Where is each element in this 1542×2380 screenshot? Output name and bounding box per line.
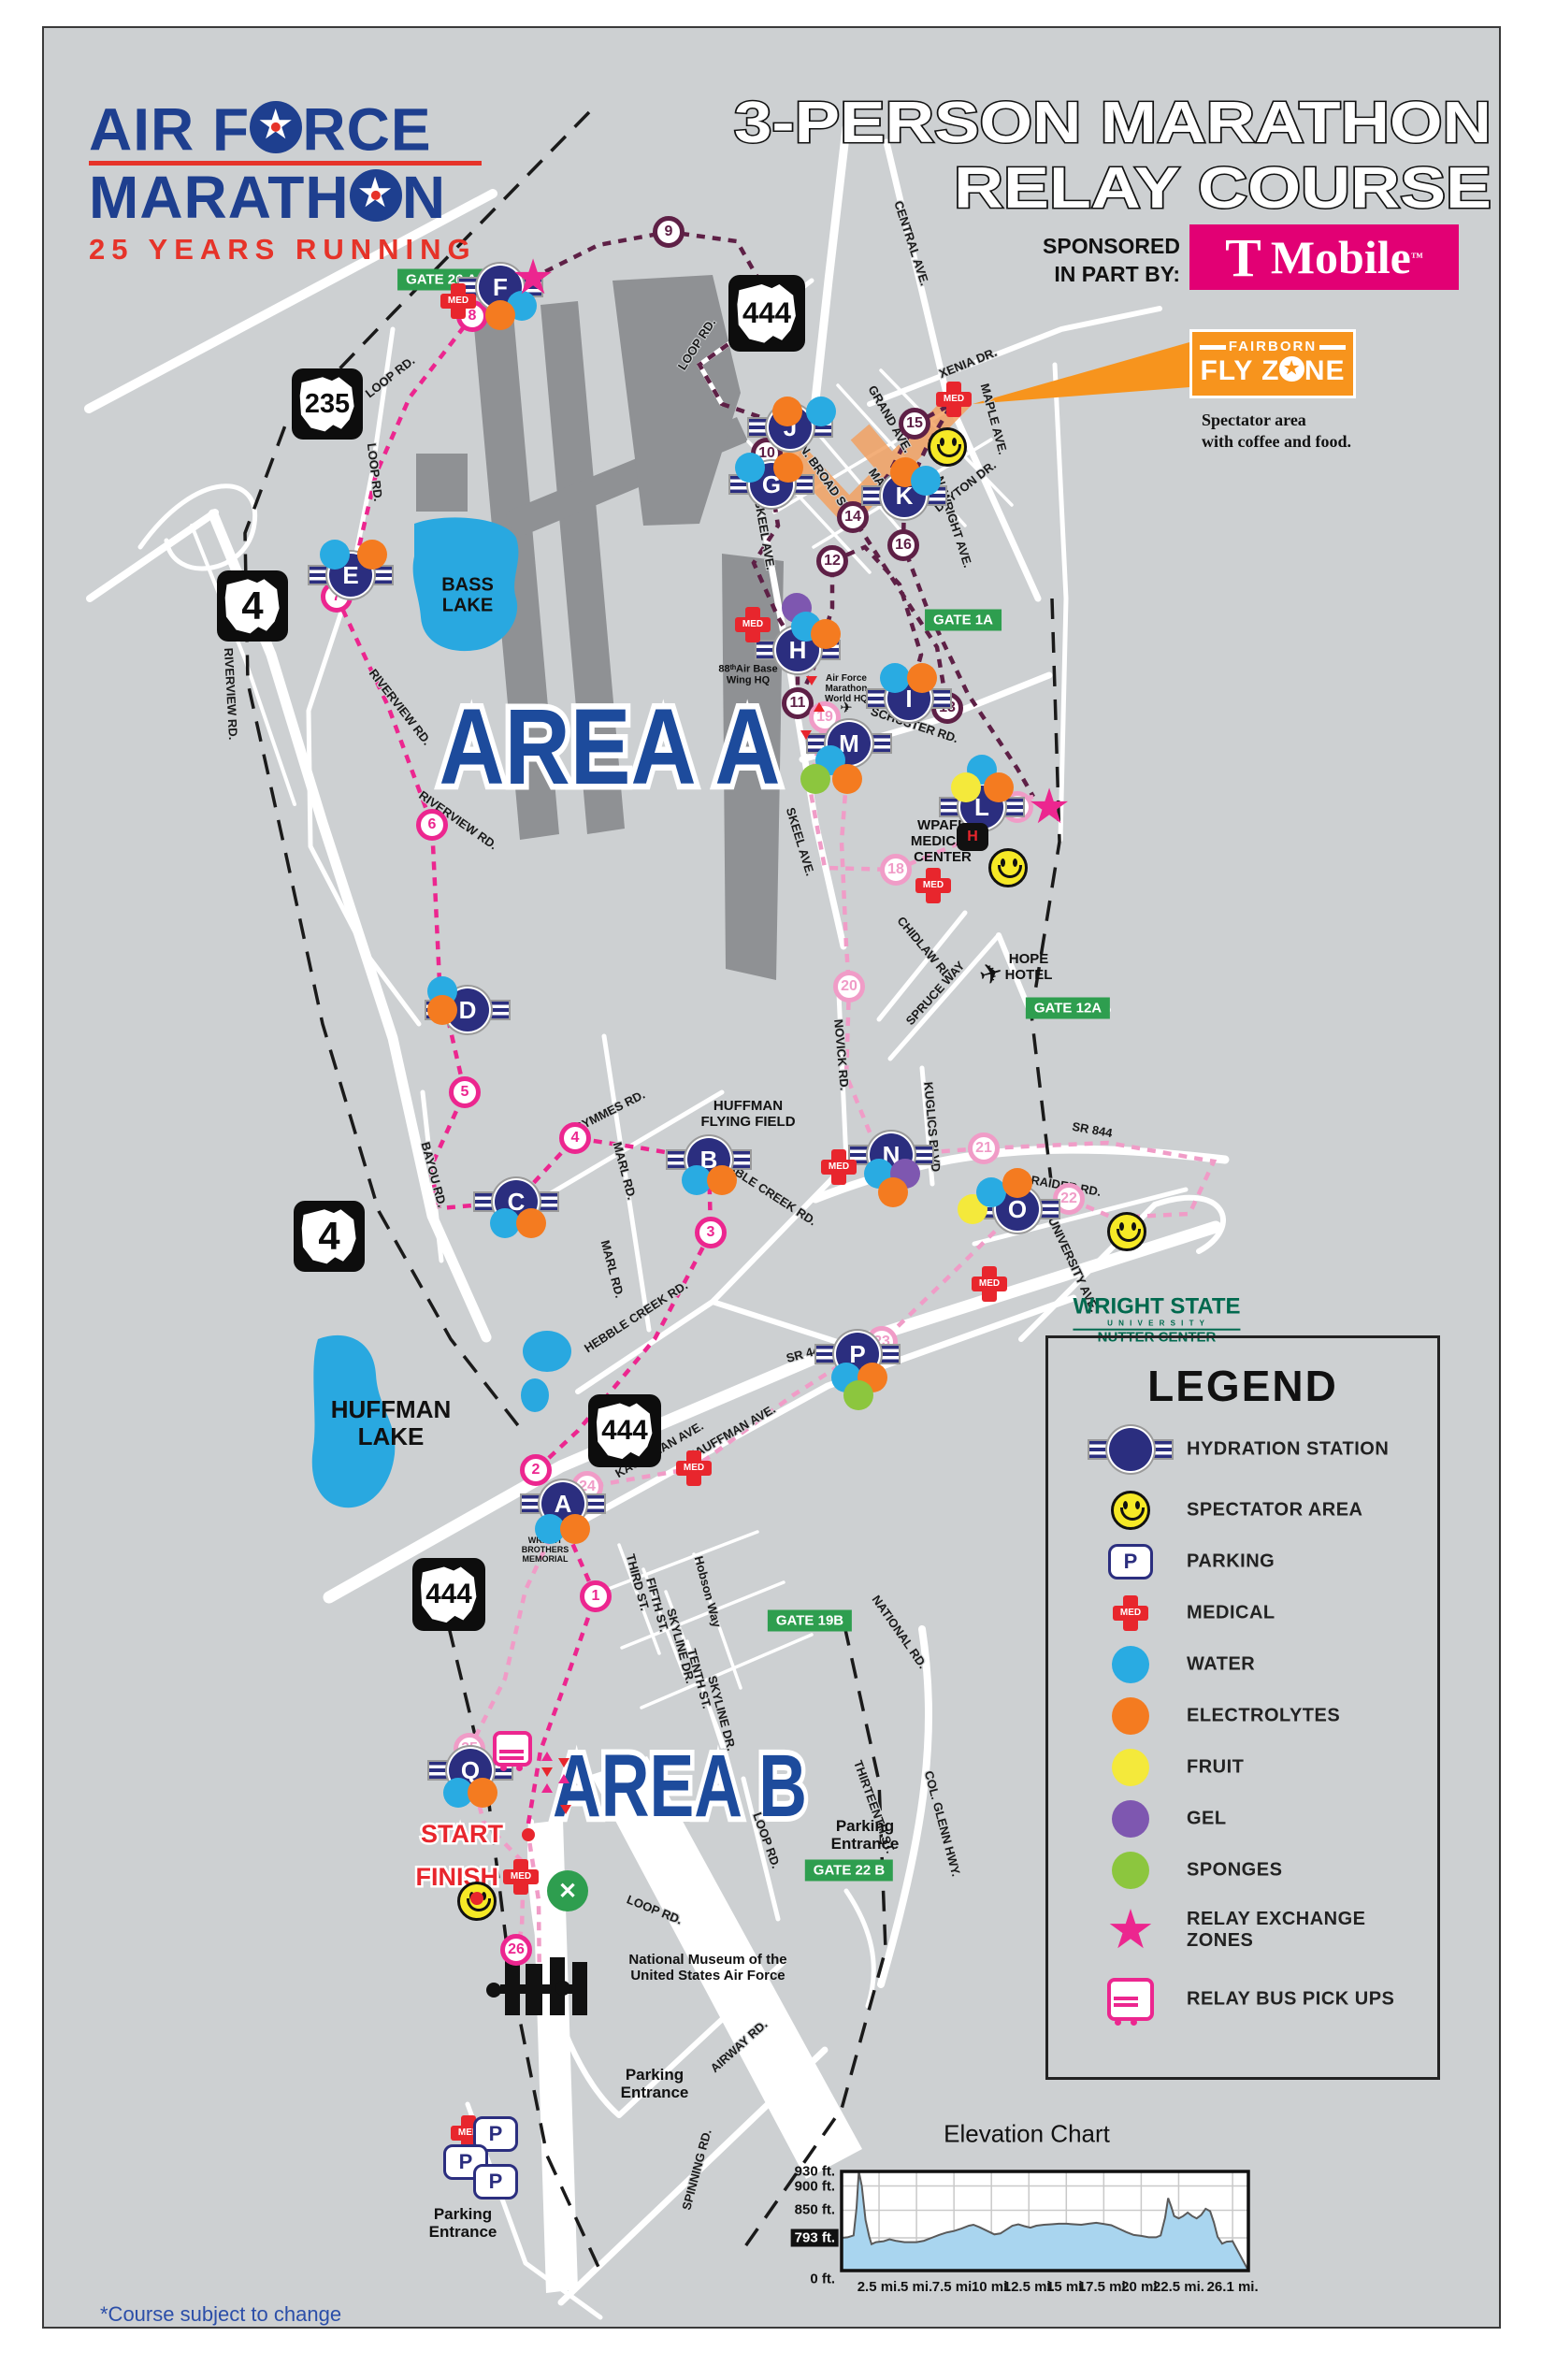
elevation-x-label: 7.5 mi. — [932, 2279, 976, 2295]
water-dot — [880, 663, 910, 693]
legend-label: RELAY EXCHANGE ZONES — [1187, 1909, 1437, 1952]
spectator-smiley-icon — [1107, 1212, 1146, 1251]
legend-icon — [1112, 1697, 1149, 1735]
legend-icon: MED — [1113, 1595, 1148, 1631]
helipad-icon: H — [957, 823, 988, 851]
direction-arrow-icon — [558, 1774, 569, 1783]
direction-arrow-icon — [541, 1752, 553, 1761]
legend-hydration-icon — [1089, 1428, 1172, 1471]
legend-parking-icon: P — [1108, 1544, 1153, 1579]
direction-arrow-icon — [814, 702, 825, 712]
legend-label: SPECTATOR AREA — [1187, 1499, 1363, 1521]
route-number: 444 — [412, 1558, 485, 1631]
legend-row: P PARKING — [1048, 1536, 1437, 1587]
start-finish-point — [522, 1828, 535, 1841]
gate-sign: GATE 22 B — [805, 1860, 893, 1882]
legend-star-icon: ★ — [1106, 1911, 1155, 1949]
medical-icon: MED — [503, 1859, 539, 1895]
course-footnote: *Course subject to change — [100, 2302, 341, 2327]
legend-row: GEL — [1048, 1793, 1437, 1844]
poi-label: National Museum of theUnited States Air … — [628, 1953, 786, 1984]
legend-icon — [1112, 1800, 1149, 1838]
legend-smiley-icon — [1111, 1491, 1150, 1530]
electrolytes-dot — [1002, 1168, 1032, 1198]
mile-marker: 26 — [500, 1934, 532, 1966]
legend-row: SPECTATOR AREA — [1048, 1484, 1437, 1536]
legend-items: HYDRATION STATION SPECTATOR AREA P PARKI… — [1048, 1415, 1437, 2034]
electrolytes-dot — [560, 1514, 590, 1544]
route-number: 444 — [728, 275, 805, 352]
water-dot — [806, 397, 836, 426]
poster-page: AREA A AREA B 3-PERSON MARATHON RELAY CO… — [0, 0, 1542, 2380]
gate-sign: GATE 19B — [768, 1610, 852, 1632]
route-shield: 444 — [728, 275, 805, 352]
start-label: START — [421, 1820, 503, 1848]
direction-arrow-icon — [800, 730, 812, 740]
legend-row: ★ RELAY EXCHANGE ZONES — [1048, 1896, 1437, 1965]
legend-row: SPONGES — [1048, 1844, 1437, 1896]
airplane-icon: ✈ — [840, 699, 852, 717]
electrolytes-dot — [984, 772, 1014, 802]
direction-arrow-icon — [541, 1767, 553, 1777]
legend-gel-icon — [1112, 1800, 1149, 1838]
star-roundel-icon — [350, 169, 402, 222]
route-shield: 444 — [588, 1394, 661, 1467]
sponges-dot — [843, 1380, 873, 1410]
legend-sponges-icon — [1112, 1852, 1149, 1889]
legend-row: RELAY BUS PICK UPS — [1048, 1965, 1437, 2034]
medical-icon: MED — [735, 607, 771, 642]
legend-icon — [1107, 1978, 1154, 2021]
legend-icon: P — [1108, 1544, 1153, 1579]
elevation-x-label: 2.5 mi. — [857, 2279, 901, 2295]
route-shield: 4 — [217, 570, 288, 642]
water-dot — [320, 540, 350, 570]
electrolytes-dot — [832, 764, 862, 794]
legend-label: PARKING — [1187, 1551, 1275, 1572]
water-dot — [911, 466, 941, 496]
route-number: 444 — [588, 1394, 661, 1467]
elevation-x-label: 26.1 mi. — [1207, 2279, 1259, 2295]
star-roundel-icon — [250, 101, 302, 153]
medical-icon: MED — [972, 1266, 1007, 1302]
mile-marker: 4 — [559, 1122, 591, 1154]
legend-row: FRUIT — [1048, 1741, 1437, 1793]
legend-row: HYDRATION STATION — [1048, 1415, 1437, 1484]
electrolytes-dot — [516, 1208, 546, 1238]
electrolytes-dot — [907, 663, 937, 693]
elevation-zero-label: 0 ft. — [806, 2271, 839, 2288]
area-a-label: AREA A — [440, 687, 781, 807]
mile-marker: 2 — [520, 1454, 552, 1486]
medical-icon: MED — [936, 382, 972, 417]
area-b-label: AREA B — [553, 1737, 807, 1836]
spectator-smiley-icon — [928, 427, 967, 467]
electrolytes-dot — [878, 1177, 908, 1207]
relay-exchange-star-icon: ★ — [1028, 788, 1072, 826]
route-shield: 235 — [292, 368, 363, 440]
closed-runway-icon: ✕ — [547, 1870, 588, 1911]
relay-exchange-star-icon: ★ — [512, 259, 555, 296]
mile-marker: 1 — [580, 1580, 612, 1612]
fairborn-flyzone-badge: FAIRBORN FLY ZNE — [1189, 329, 1356, 398]
elevation-y-label: 793 ft. — [791, 2229, 839, 2246]
direction-arrow-icon — [558, 1758, 569, 1767]
legend-bus-icon — [1107, 1978, 1154, 2021]
legend-icon — [1111, 1491, 1150, 1530]
legend-row: ELECTROLYTES — [1048, 1690, 1437, 1741]
mile-marker: 20 — [833, 971, 865, 1002]
route-number: 4 — [294, 1201, 365, 1272]
legend-label: ELECTROLYTES — [1187, 1705, 1340, 1726]
route-number: 4 — [217, 570, 288, 642]
mile-marker: 12 — [816, 545, 848, 577]
page-title-line1: 3-PERSON MARATHON — [734, 91, 1492, 155]
medical-icon: MED — [821, 1149, 857, 1185]
medical-icon: MED — [676, 1450, 712, 1486]
legend-label: SPONGES — [1187, 1859, 1282, 1881]
elevation-x-label: 5 mi. — [901, 2279, 932, 2295]
spectator-smiley-icon — [988, 848, 1028, 887]
museum-buildings — [486, 1957, 587, 2015]
start-finish-point — [470, 1892, 483, 1905]
air-force-marathon-logo: AIR FRCE MARATHN 25 YEARS RUNNING — [89, 101, 482, 267]
legend-water-icon — [1112, 1646, 1149, 1683]
gate-sign: GATE 12A — [1026, 998, 1110, 1019]
flyzone-caption: Spectator areawith coffee and food. — [1202, 410, 1426, 453]
legend-label: HYDRATION STATION — [1187, 1439, 1389, 1461]
medical-icon: MED — [915, 868, 951, 903]
page-title-line2: RELAY COURSE — [954, 156, 1492, 221]
mile-marker: 3 — [695, 1217, 727, 1248]
electrolytes-dot — [811, 619, 841, 649]
elevation-y-label: 900 ft. — [791, 2177, 839, 2195]
legend-label: WATER — [1187, 1653, 1255, 1675]
mile-marker: 5 — [449, 1076, 481, 1108]
sponges-dot — [800, 764, 830, 794]
elevation-x-label: 22.5 mi. — [1153, 2279, 1204, 2295]
relay-bus-icon — [493, 1731, 532, 1767]
logo-line1: AIR FRCE — [89, 101, 482, 157]
star-roundel-icon — [1279, 356, 1304, 381]
legend-icon: ★ — [1106, 1911, 1155, 1949]
legend-row: MED MEDICAL — [1048, 1587, 1437, 1638]
medical-icon: MED — [440, 283, 476, 319]
gate-sign: GATE 1A — [925, 610, 1002, 631]
legend-label: RELAY BUS PICK UPS — [1187, 1989, 1394, 2011]
electrolytes-dot — [468, 1778, 497, 1808]
legend-icon — [1112, 1852, 1149, 1889]
poi-label: HOPEHOTEL — [1005, 952, 1053, 984]
poi-label: ParkingEntrance — [621, 2066, 689, 2101]
legend-box: LEGEND HYDRATION STATION SPECTATOR AREA … — [1045, 1335, 1440, 2080]
direction-arrow-icon — [806, 676, 817, 685]
poi-label: HUFFMANLAKE — [331, 1396, 452, 1450]
legend-medical-icon: MED — [1113, 1595, 1148, 1631]
elevation-y-label: 850 ft. — [791, 2201, 839, 2219]
legend-label: GEL — [1187, 1808, 1227, 1829]
logo-line2: MARATHN — [89, 161, 482, 227]
direction-arrow-icon — [541, 1783, 553, 1793]
electrolytes-dot — [773, 453, 803, 483]
poi-label: ParkingEntrance — [429, 2205, 497, 2241]
mile-marker: 18 — [880, 854, 912, 886]
mile-marker: 9 — [653, 216, 685, 248]
electrolytes-dot — [707, 1165, 737, 1195]
poi-label: ParkingEntrance — [831, 1817, 900, 1853]
poi-label: HUFFMANFLYING FIELD — [700, 1099, 795, 1131]
route-shield: 444 — [412, 1558, 485, 1631]
electrolytes-dot — [427, 995, 457, 1025]
water-dot — [735, 453, 765, 483]
electrolytes-dot — [772, 397, 802, 426]
tmobile-logo: TMobile™ — [1189, 224, 1459, 290]
sponsor-text: SPONSOREDIN PART BY: — [935, 232, 1180, 288]
parking-icon: P — [473, 2164, 518, 2200]
electrolytes-dot — [357, 540, 387, 570]
route-number: 235 — [292, 368, 363, 440]
poi-label: BASSLAKE — [441, 575, 494, 617]
legend-icon — [1089, 1428, 1172, 1471]
route-shield: 4 — [294, 1201, 365, 1272]
logo-line3: 25 YEARS RUNNING — [89, 233, 482, 267]
legend-title: LEGEND — [1048, 1361, 1437, 1411]
legend-row: WATER — [1048, 1638, 1437, 1690]
mile-marker: 6 — [416, 809, 448, 841]
legend-electrolytes-icon — [1112, 1697, 1149, 1735]
direction-arrow-icon — [560, 1805, 571, 1814]
fruit-dot — [951, 772, 981, 802]
legend-label: FRUIT — [1187, 1756, 1244, 1778]
mile-marker: 16 — [887, 529, 919, 561]
mile-marker: 15 — [899, 408, 930, 440]
legend-label: MEDICAL — [1187, 1602, 1275, 1623]
mile-marker: 21 — [968, 1132, 1000, 1164]
legend-icon — [1112, 1749, 1149, 1786]
legend-icon — [1112, 1646, 1149, 1683]
legend-fruit-icon — [1112, 1749, 1149, 1786]
